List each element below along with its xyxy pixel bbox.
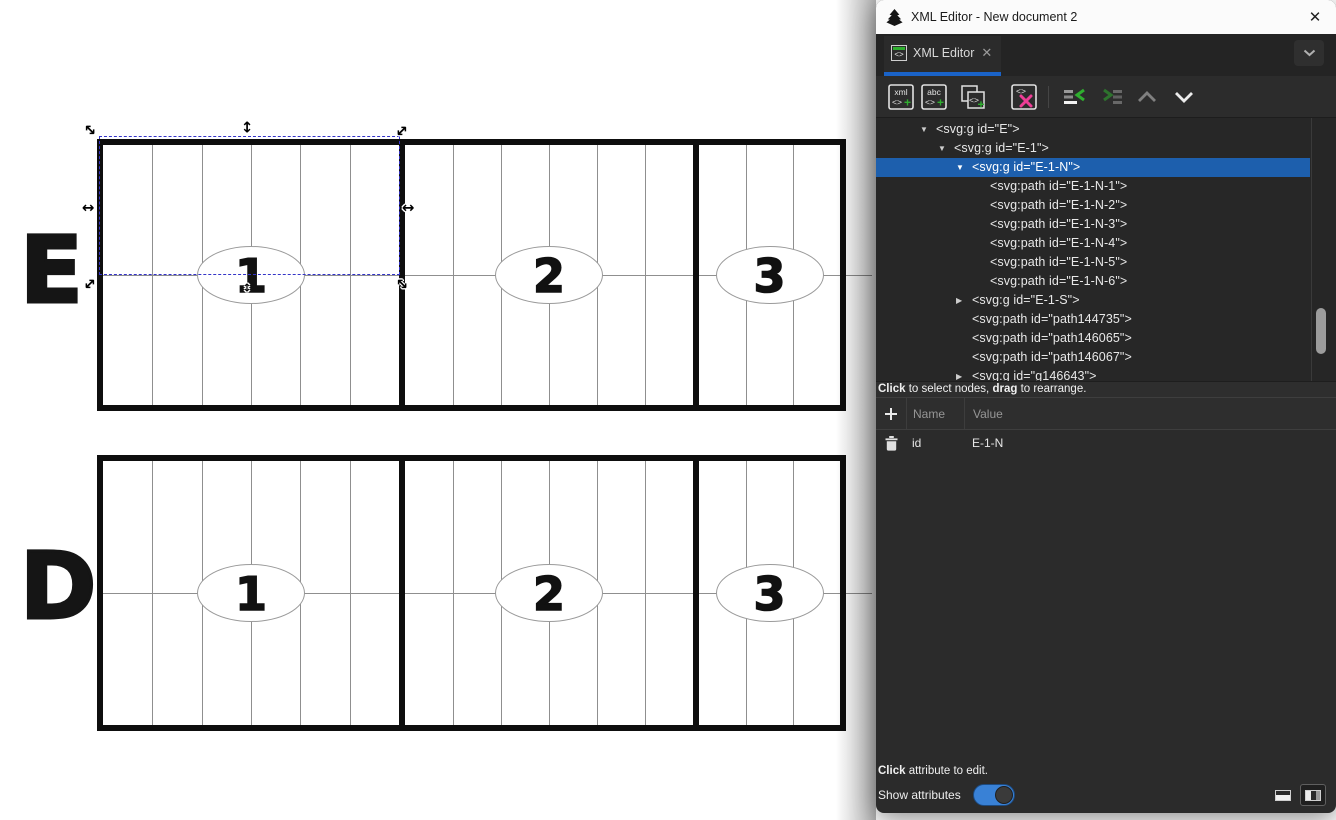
xml-node-label: <svg:g id="E-1"> — [954, 139, 1049, 158]
panel-drop-shadow — [836, 0, 876, 820]
row-label-E[interactable]: E — [20, 225, 83, 317]
section-number: 3 — [753, 569, 785, 617]
attribute-row[interactable]: id E-1-N — [876, 430, 1336, 456]
xml-tree-node[interactable]: <svg:path id="path146067"> — [876, 348, 1310, 367]
dialog-title: XML Editor - New document 2 — [911, 10, 1077, 24]
xml-tree-rows: ▼<svg:g id="E">▼<svg:g id="E-1">▼<svg:g … — [876, 120, 1336, 381]
expand-arrow-icon[interactable]: ▼ — [938, 139, 954, 158]
svg-text:+: + — [904, 96, 911, 110]
section-number: 1 — [235, 569, 267, 617]
chevron-down-icon — [1303, 49, 1316, 57]
xml-tree-node[interactable]: <svg:path id="path146065"> — [876, 329, 1310, 348]
trash-icon — [885, 436, 898, 451]
layout-horizontal-button[interactable] — [1270, 784, 1296, 806]
section-divider — [693, 461, 699, 725]
section-number-ellipse[interactable]: 2 — [495, 246, 603, 304]
move-node-up-icon — [1137, 91, 1157, 103]
xml-node-label: <svg:path id="E-1-N-1"> — [990, 177, 1127, 196]
xml-tree-node[interactable]: <svg:path id="E-1-N-6"> — [876, 272, 1310, 291]
section-number: 2 — [533, 251, 565, 299]
selection-handle-middle-right[interactable]: ↔ — [402, 201, 415, 216]
attributes-header: Name Value — [876, 398, 1336, 430]
section-number-ellipse[interactable]: 3 — [716, 564, 824, 622]
drawing-row-D[interactable]: 123 — [97, 455, 846, 731]
xml-node-label: <svg:path id="path146067"> — [972, 348, 1132, 367]
attribute-name[interactable]: id — [912, 436, 921, 450]
show-attributes-toggle[interactable] — [973, 784, 1015, 806]
tab-overflow-button[interactable] — [1294, 40, 1324, 66]
show-attributes-label: Show attributes — [878, 788, 961, 802]
delete-node-button[interactable]: <> — [1011, 84, 1037, 110]
duplicate-node-button[interactable]: <> + — [960, 84, 986, 110]
xml-tree-node[interactable]: <svg:path id="path144735"> — [876, 310, 1310, 329]
attr-name-header: Name — [913, 407, 945, 421]
new-text-node-icon: abc <> + — [921, 84, 947, 110]
xml-node-label: <svg:path id="E-1-N-2"> — [990, 196, 1127, 215]
row-label-D[interactable]: D — [20, 541, 96, 633]
dialog-titlebar[interactable]: XML Editor - New document 2 ✕ — [876, 0, 1336, 34]
vertical-grid-line — [152, 145, 153, 405]
xml-node-label: <svg:path id="path144735"> — [972, 310, 1132, 329]
svg-text:<>: <> — [892, 97, 902, 107]
tree-scrollbar[interactable] — [1311, 118, 1330, 381]
move-node-up-button[interactable] — [1134, 84, 1160, 110]
toolbar-separator — [1048, 86, 1049, 108]
xml-tree-node[interactable]: <svg:path id="E-1-N-5"> — [876, 253, 1310, 272]
collapse-arrow-icon[interactable]: ▶ — [956, 291, 972, 310]
xml-tree-node[interactable]: ▼<svg:g id="E-1"> — [876, 139, 1310, 158]
xml-node-label: <svg:g id="g146643"> — [972, 367, 1097, 381]
xml-editor-tab-icon: <> — [891, 45, 907, 61]
section-number: 3 — [753, 251, 785, 299]
duplicate-node-icon: <> + — [960, 84, 986, 110]
xml-tree-node[interactable]: ▶<svg:g id="g146643"> — [876, 367, 1310, 381]
layout-vertical-button[interactable] — [1300, 784, 1326, 806]
xml-tree-node[interactable]: ▼<svg:g id="E"> — [876, 120, 1310, 139]
add-attribute-button[interactable] — [876, 398, 906, 429]
expand-arrow-icon[interactable]: ▼ — [956, 158, 972, 177]
xml-node-label: <svg:g id="E"> — [936, 120, 1020, 139]
selection-handle-middle-left[interactable]: ↔ — [82, 201, 95, 216]
panel-footer: Show attributes — [876, 781, 1336, 813]
tab-xml-editor[interactable]: <> XML Editor ✕ — [884, 36, 1001, 76]
tab-close-icon[interactable]: ✕ — [981, 45, 992, 61]
xml-tree-node[interactable]: <svg:path id="E-1-N-4"> — [876, 234, 1310, 253]
section-number-ellipse[interactable]: 1 — [197, 564, 305, 622]
xml-editor-dialog: XML Editor - New document 2 ✕ <> XML Edi… — [876, 0, 1336, 813]
dialog-tab-bar: <> XML Editor ✕ — [876, 34, 1336, 76]
xml-tree-node[interactable]: ▼<svg:g id="E-1-N"> — [876, 158, 1310, 177]
xml-node-label: <svg:g id="E-1-N"> — [972, 158, 1080, 177]
selection-handle-top-center[interactable]: ↕ — [241, 121, 254, 136]
tree-hint-text: Click to select nodes, drag to rearrange… — [876, 381, 1336, 398]
toggle-knob — [995, 786, 1013, 804]
indent-node-button[interactable] — [1100, 84, 1126, 110]
inkscape-workspace: 123E123D ↔ ↕ ↔ ↔ ↔ ↔ ↕ ↔ XML Editor - Ne… — [0, 0, 1336, 820]
xml-tree-node[interactable]: <svg:path id="E-1-N-2"> — [876, 196, 1310, 215]
vertical-grid-line — [645, 461, 646, 725]
layout-vertical-icon — [1305, 790, 1321, 801]
new-element-node-icon: xml <> + — [888, 84, 914, 110]
xml-node-label: <svg:path id="E-1-N-6"> — [990, 272, 1127, 291]
xml-toolbar: xml <> + abc <> + <> + — [876, 76, 1336, 118]
xml-tree-node[interactable]: <svg:path id="E-1-N-3"> — [876, 215, 1310, 234]
drawing-row-E[interactable]: 123 — [97, 139, 846, 411]
xml-node-label: <svg:path id="E-1-N-4"> — [990, 234, 1127, 253]
close-icon[interactable]: ✕ — [1304, 8, 1326, 26]
svg-text:<>: <> — [1016, 86, 1026, 96]
new-text-node-button[interactable]: abc <> + — [921, 84, 947, 110]
expand-arrow-icon[interactable]: ▼ — [920, 120, 936, 139]
attribute-hint-text: Click attribute to edit. — [876, 764, 1336, 781]
attr-value-header: Value — [973, 407, 1003, 421]
collapse-arrow-icon[interactable]: ▶ — [956, 367, 972, 381]
section-number-ellipse[interactable]: 2 — [495, 564, 603, 622]
section-number-ellipse[interactable]: 3 — [716, 246, 824, 304]
new-element-node-button[interactable]: xml <> + — [888, 84, 914, 110]
attribute-value[interactable]: E-1-N — [972, 436, 1003, 450]
vertical-grid-line — [350, 461, 351, 725]
inkscape-logo-icon — [886, 9, 903, 26]
section-number: 2 — [533, 569, 565, 617]
tab-label: XML Editor — [913, 46, 974, 60]
layout-horizontal-icon — [1275, 790, 1291, 801]
xml-tree: ▼<svg:g id="E">▼<svg:g id="E-1">▼<svg:g … — [876, 118, 1336, 381]
xml-node-label: <svg:path id="E-1-N-3"> — [990, 215, 1127, 234]
svg-text:+: + — [977, 98, 984, 111]
attributes-empty-area — [876, 456, 1336, 764]
xml-node-label: <svg:g id="E-1-S"> — [972, 291, 1080, 310]
plus-icon — [884, 407, 898, 421]
section-divider — [693, 145, 699, 405]
vertical-grid-line — [350, 145, 351, 405]
vertical-grid-line — [645, 145, 646, 405]
svg-text:+: + — [937, 96, 944, 110]
xml-tree-node[interactable]: <svg:path id="E-1-N-1"> — [876, 177, 1310, 196]
vertical-grid-line — [453, 145, 454, 405]
xml-node-label: <svg:path id="path146065"> — [972, 329, 1132, 348]
delete-node-icon: <> — [1011, 84, 1037, 110]
svg-text:<>: <> — [925, 97, 935, 107]
move-node-down-icon — [1174, 91, 1194, 103]
xml-node-label: <svg:path id="E-1-N-5"> — [990, 253, 1127, 272]
unindent-node-button[interactable] — [1062, 84, 1088, 110]
vertical-grid-line — [453, 461, 454, 725]
selection-handle-bottom-center[interactable]: ↕ — [242, 283, 251, 294]
section-divider — [399, 461, 405, 725]
vertical-grid-line — [152, 461, 153, 725]
delete-attribute-button[interactable] — [876, 430, 906, 456]
tree-scrollbar-thumb[interactable] — [1316, 308, 1326, 354]
xml-tree-node[interactable]: ▶<svg:g id="E-1-S"> — [876, 291, 1310, 310]
section-number-ellipse[interactable]: 1 — [197, 246, 305, 304]
move-node-down-button[interactable] — [1171, 84, 1197, 110]
indent-node-icon — [1101, 88, 1125, 106]
unindent-node-icon — [1063, 88, 1087, 106]
